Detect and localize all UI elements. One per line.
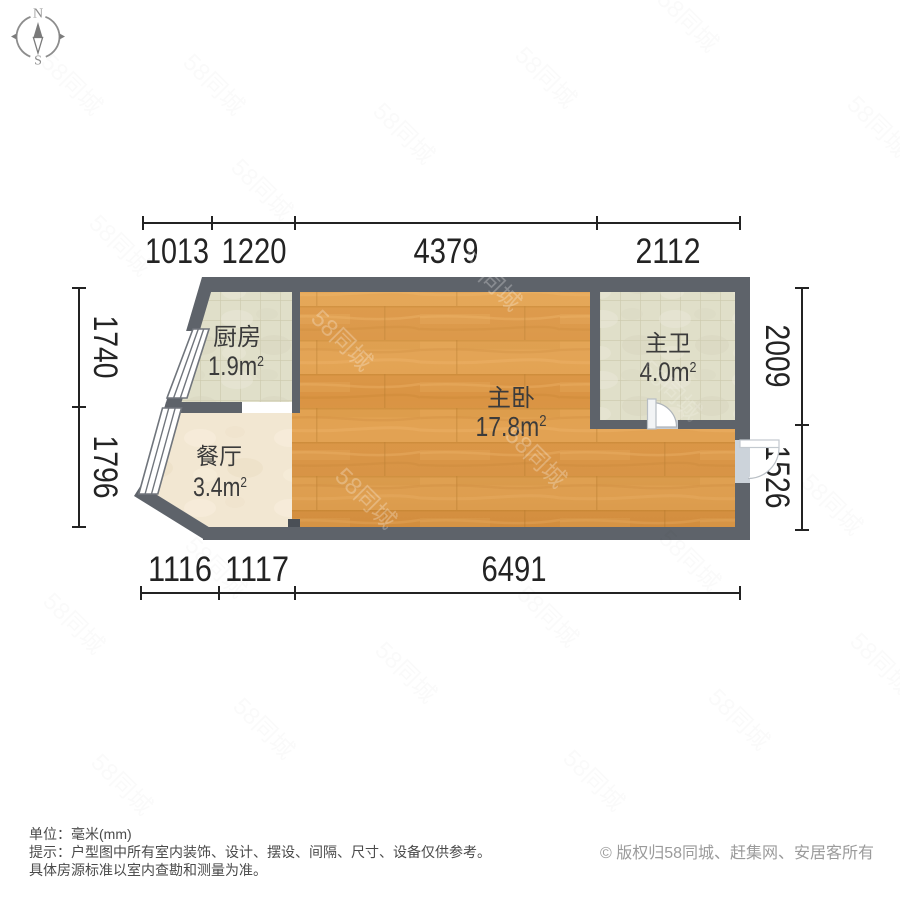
svg-text:提示：户型图中所有室内装饰、设计、摆设、间隔、尺寸、设备仅供: 提示：户型图中所有室内装饰、设计、摆设、间隔、尺寸、设备仅供参考。 <box>29 844 491 860</box>
svg-text:58同城: 58同城 <box>369 637 441 709</box>
svg-text:1.9m2: 1.9m2 <box>208 351 264 381</box>
svg-text:58同城: 58同城 <box>511 581 583 653</box>
svg-text:主卫: 主卫 <box>645 330 691 356</box>
svg-text:单位：毫米(mm): 单位：毫米(mm) <box>29 826 132 842</box>
svg-text:58同城: 58同城 <box>509 42 581 114</box>
svg-text:餐厅: 餐厅 <box>196 443 242 469</box>
svg-text:58同城: 58同城 <box>844 628 900 700</box>
svg-text:1740: 1740 <box>86 316 124 379</box>
svg-text:58同城: 58同城 <box>225 154 297 226</box>
svg-text:58同城: 58同城 <box>367 98 439 170</box>
svg-text:58同城: 58同城 <box>557 745 629 817</box>
svg-text:58同城: 58同城 <box>37 588 109 660</box>
svg-text:2112: 2112 <box>636 232 701 271</box>
svg-text:58同城: 58同城 <box>35 49 107 121</box>
svg-text:主卧: 主卧 <box>487 385 535 412</box>
svg-text:58同城: 58同城 <box>702 684 774 756</box>
svg-text:1013: 1013 <box>145 232 209 271</box>
svg-text:58同城: 58同城 <box>651 0 723 58</box>
svg-text:N: N <box>33 7 43 22</box>
svg-text:58同城: 58同城 <box>177 49 249 121</box>
svg-text:1796: 1796 <box>86 436 124 499</box>
svg-text:3.4m2: 3.4m2 <box>193 472 247 502</box>
svg-text:58同城: 58同城 <box>227 693 299 765</box>
svg-text:2009: 2009 <box>758 325 796 388</box>
svg-text:具体房源标准以室内查勘和测量为准。: 具体房源标准以室内查勘和测量为准。 <box>29 862 267 878</box>
svg-text:厨房: 厨房 <box>213 324 261 351</box>
svg-text:© 版权归58同城、赶集网、安居客所有: © 版权归58同城、赶集网、安居客所有 <box>600 844 874 862</box>
svg-text:58同城: 58同城 <box>841 91 900 163</box>
svg-text:1220: 1220 <box>222 232 287 271</box>
svg-text:6491: 6491 <box>482 550 547 589</box>
svg-text:58同城: 58同城 <box>85 749 157 821</box>
